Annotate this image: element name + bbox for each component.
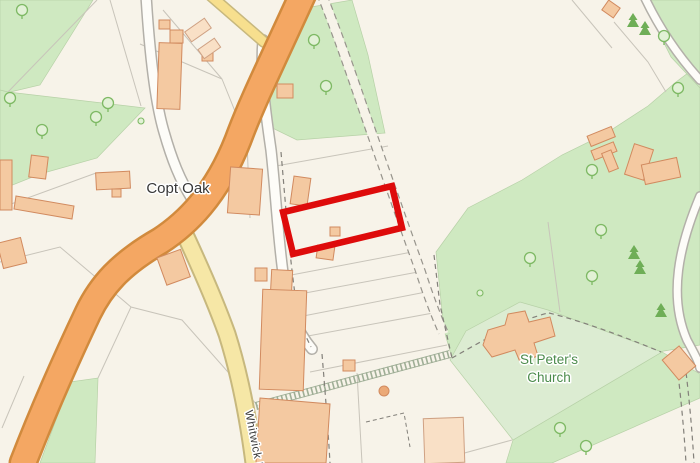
building [255, 268, 267, 281]
building [330, 227, 340, 236]
building [423, 417, 465, 463]
map-canvas[interactable]: Copt Oak St Peter's Church Whitwick Road [0, 0, 700, 463]
building [259, 289, 306, 390]
church-label-line1: St Peter's [520, 352, 578, 367]
building [157, 43, 182, 110]
building [256, 398, 330, 463]
building [0, 160, 12, 210]
place-label-copt-oak: Copt Oak [146, 180, 210, 197]
bush-icon [138, 118, 144, 124]
building [29, 155, 49, 179]
building [277, 84, 293, 98]
building [96, 171, 131, 190]
small-structure [379, 386, 389, 396]
building [170, 30, 183, 43]
building [343, 360, 355, 371]
building [290, 176, 311, 206]
building [112, 189, 121, 197]
church-label-line2: Church [527, 370, 571, 385]
building [159, 20, 170, 29]
building [227, 167, 262, 215]
bush-icon [477, 290, 483, 296]
